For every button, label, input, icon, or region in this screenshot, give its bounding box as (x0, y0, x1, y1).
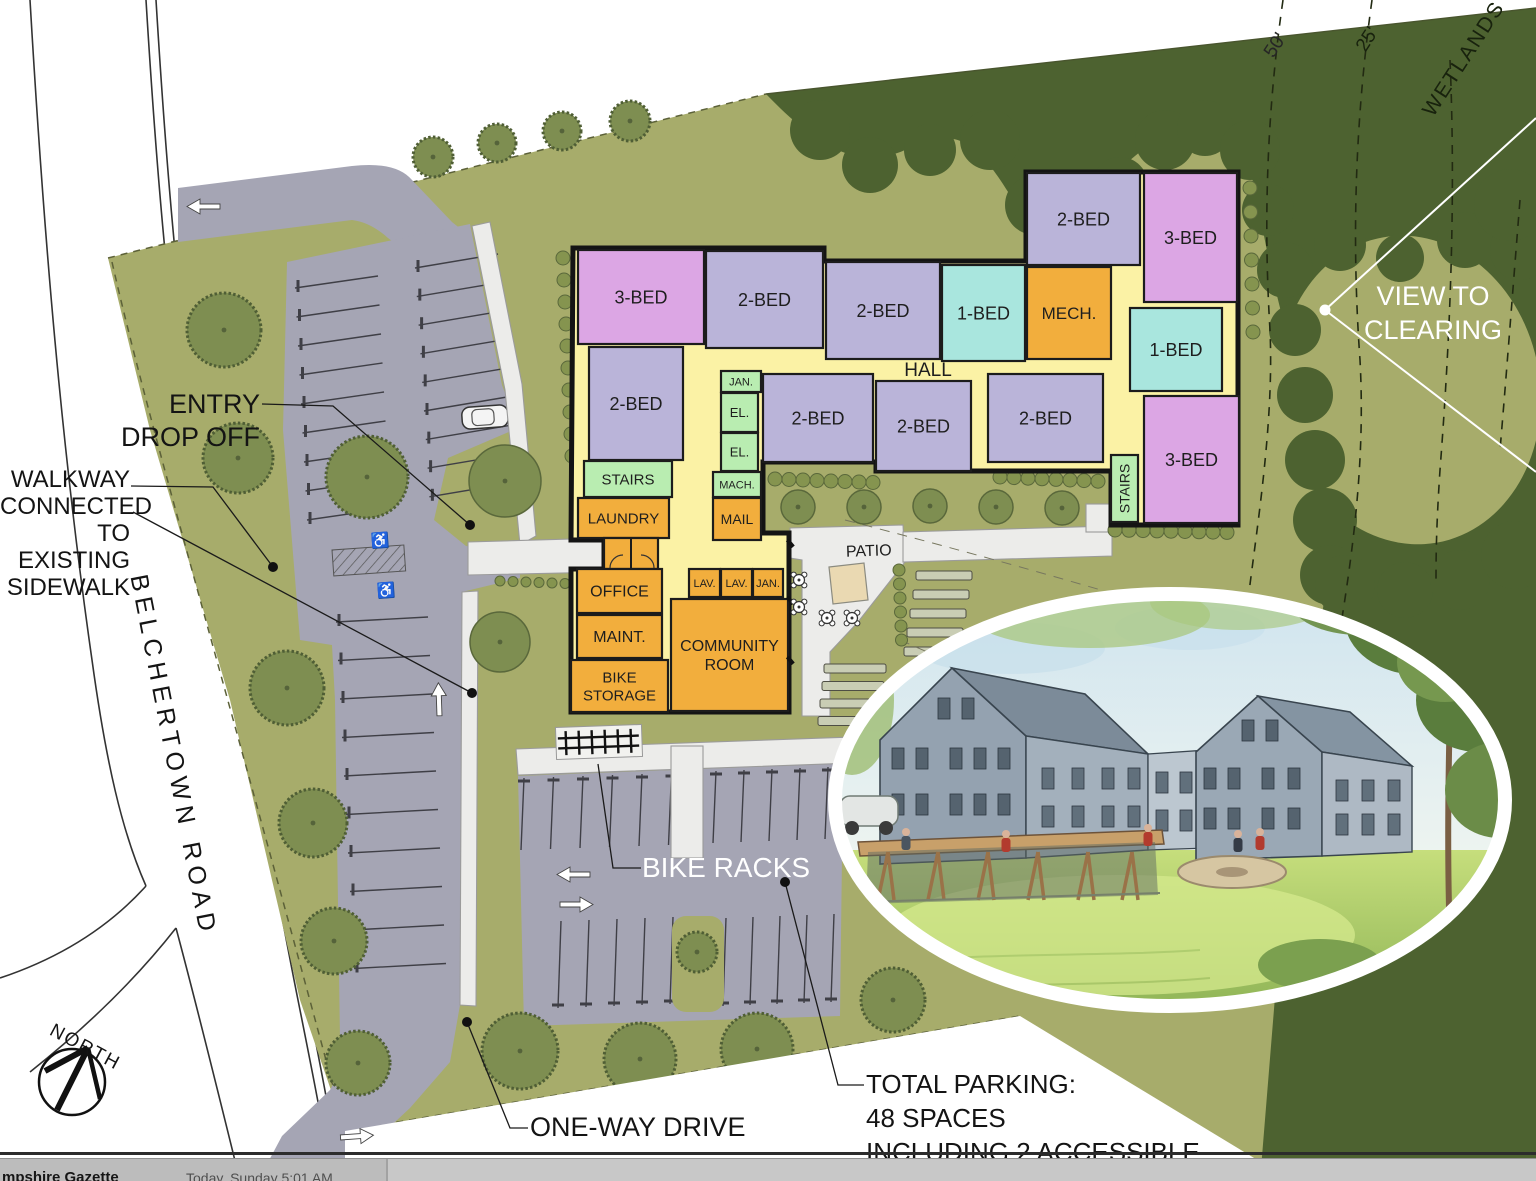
view-to-clearing-label: VIEW TO CLEARING (1330, 280, 1536, 348)
room-2-bed-label: 2-BED (1057, 209, 1110, 229)
room-2-bed-label: 2-BED (1019, 408, 1072, 428)
shrub-icon (824, 474, 838, 488)
shrub-icon (1246, 325, 1260, 339)
room-3-bed: 3-BED (578, 250, 704, 344)
room-lav--label: LAV. (725, 578, 747, 590)
shrub-icon (895, 620, 907, 632)
bike-racks-label: BIKE RACKS (642, 852, 810, 884)
shrub-icon (768, 472, 782, 486)
room-mech--label: MECH. (1042, 304, 1097, 323)
shrub-icon (1063, 473, 1077, 487)
room-lav-: LAV. (721, 569, 752, 597)
site-plan-page: ♿ ♿ 3 (0, 0, 1536, 1181)
patio-table-icon (791, 572, 807, 588)
tree-icon (326, 1031, 390, 1095)
shrub-icon (1246, 301, 1260, 315)
entry-drop-off-label: ENTRY DROP OFF (54, 388, 260, 454)
room-2-bed: 2-BED (589, 347, 683, 460)
room-1-bed-label: 1-BED (1149, 340, 1202, 360)
tree-icon (187, 293, 261, 367)
room-laundry-label: LAUNDRY (588, 510, 659, 527)
shrub-icon (866, 476, 880, 490)
garden-bed (913, 590, 969, 599)
shrub-icon (508, 577, 518, 587)
room-2-bed-label: 2-BED (738, 290, 791, 310)
one-way-drive-label: ONE-WAY DRIVE (530, 1112, 746, 1143)
room-2-bed: 2-BED (826, 262, 940, 359)
bike-racks (555, 724, 642, 759)
tree-icon (610, 101, 650, 141)
tree-icon (250, 651, 324, 725)
room-jan-: JAN. (753, 569, 783, 597)
wheelchair-icon: ♿ (370, 531, 390, 550)
statusbar-bar: mpshire Gazette Today, Sunday 5:01 AM (0, 1158, 1536, 1181)
shrub-icon (557, 273, 571, 287)
garden-bed (824, 664, 886, 673)
room-stairs: STAIRS (1111, 455, 1138, 522)
shrub-icon (495, 576, 505, 586)
shrub-icon (1244, 229, 1258, 243)
room-1-bed-label: 1-BED (957, 303, 1010, 323)
patio-table-icon (844, 610, 860, 626)
room-el-: EL. (721, 433, 758, 471)
room-3-bed: 3-BED (1144, 396, 1239, 523)
room-office-label: OFFICE (590, 584, 649, 601)
statusbar-right-section (388, 1159, 1536, 1181)
statusbar-rule (0, 1152, 1536, 1155)
room-mail: MAIL (713, 498, 761, 540)
shrub-icon (1049, 472, 1063, 486)
tree-icon (677, 932, 717, 972)
room-2-bed-label: 2-BED (609, 394, 662, 414)
room-el--label: EL. (730, 405, 750, 420)
room-laundry: LAUNDRY (578, 498, 669, 538)
news-masthead: mpshire Gazette (2, 1169, 119, 1181)
room-office: OFFICE (577, 569, 662, 613)
room-stairs-label: STAIRS (601, 471, 654, 488)
shrub-icon (1091, 474, 1105, 488)
room-stairs-label: STAIRS (1116, 464, 1132, 514)
room-2-bed-label: 2-BED (856, 301, 909, 321)
garden-bed (822, 682, 884, 691)
room-jan--label: JAN. (729, 376, 753, 388)
tree-icon (847, 490, 881, 524)
tree-icon (781, 490, 815, 524)
shrub-icon (1035, 472, 1049, 486)
room-lav-: LAV. (689, 569, 720, 597)
tree-icon (413, 137, 453, 177)
shrub-icon (852, 475, 866, 489)
garden-bed (916, 571, 972, 580)
room-2-bed-label: 2-BED (791, 408, 844, 428)
shrub-icon (1245, 277, 1259, 291)
shrub-icon (810, 474, 824, 488)
site-plan-drawing: ♿ ♿ 3 (0, 0, 1536, 1181)
room-el--label: EL. (730, 445, 750, 460)
shrub-icon (796, 473, 810, 487)
room-2-bed: 2-BED (763, 374, 873, 462)
room-3-bed-label: 3-BED (1164, 228, 1217, 248)
patio-square (829, 563, 868, 604)
room-lav--label: LAV. (693, 578, 715, 590)
room-3-bed-label: 3-BED (1165, 450, 1218, 470)
room-2-bed: 2-BED (876, 381, 971, 471)
shrub-icon (558, 295, 572, 309)
shrub-icon (893, 564, 905, 576)
shrub-icon (534, 578, 544, 588)
shrub-icon (838, 475, 852, 489)
room-jan--label: JAN. (756, 578, 780, 590)
shrub-icon (894, 592, 906, 604)
shrub-icon (1243, 181, 1257, 195)
room-maint--label: MAINT. (593, 629, 645, 646)
shrub-icon (782, 473, 796, 487)
status-datetime: Today, Sunday 5:01 AM (186, 1170, 333, 1181)
tree-icon (979, 490, 1013, 524)
room-2-bed: 2-BED (706, 251, 823, 348)
shrub-icon (1245, 253, 1259, 267)
tree-icon (301, 908, 367, 974)
room-stairs: STAIRS (584, 461, 672, 497)
shrub-icon (1244, 205, 1258, 219)
room-community-room: COMMUNITYROOM (671, 599, 788, 711)
room-3-bed: 3-BED (1144, 173, 1237, 302)
room-mail-label: MAIL (721, 511, 754, 527)
tree-icon (543, 112, 581, 150)
accessible-aisle-hatch (332, 545, 406, 576)
tree-icon (326, 436, 408, 518)
tree-icon (478, 124, 516, 162)
room-jan-: JAN. (721, 371, 761, 392)
shrub-icon (556, 251, 570, 265)
shrub-icon (547, 578, 557, 588)
shrub-icon (895, 606, 907, 618)
wheelchair-icon: ♿ (376, 581, 396, 600)
parked-car-icon (461, 404, 508, 429)
patio-table-icon (791, 599, 807, 615)
room-2-bed: 2-BED (1027, 173, 1140, 265)
shrub-icon (521, 577, 531, 587)
room-mach--label: MACH. (719, 479, 754, 491)
room-2-bed: 2-BED (988, 374, 1103, 462)
statusbar-left-section: mpshire Gazette Today, Sunday 5:01 AM (0, 1159, 388, 1181)
shrub-icon (896, 634, 908, 646)
patio-label: PATIO (846, 542, 892, 561)
walkway-label: WALKWAY CONNECTED TO EXISTING SIDEWALK (0, 466, 130, 602)
tree-icon (470, 612, 530, 672)
tree-icon (913, 489, 947, 523)
room-mach-: MACH. (713, 472, 761, 497)
tree-icon (1045, 491, 1079, 525)
tree-icon (482, 1013, 558, 1089)
tree-icon (279, 789, 347, 857)
room-bike-storage: BIKESTORAGE (571, 660, 668, 712)
room-mech-: MECH. (1027, 267, 1111, 359)
shrub-icon (894, 578, 906, 590)
garden-bed (910, 609, 966, 618)
room-maint-: MAINT. (577, 615, 662, 658)
room-3-bed-label: 3-BED (614, 287, 667, 307)
room-1-bed: 1-BED (942, 265, 1025, 361)
shrub-icon (1077, 474, 1091, 488)
tree-icon (469, 445, 541, 517)
room-2-bed-label: 2-BED (897, 416, 950, 436)
tree-icon (861, 968, 925, 1032)
room-1-bed: 1-BED (1130, 308, 1222, 391)
hall-label: HALL (904, 360, 952, 381)
room-el-: EL. (721, 393, 758, 432)
patio-table-icon (819, 610, 835, 626)
status-bar: mpshire Gazette Today, Sunday 5:01 AM (0, 1150, 1536, 1181)
